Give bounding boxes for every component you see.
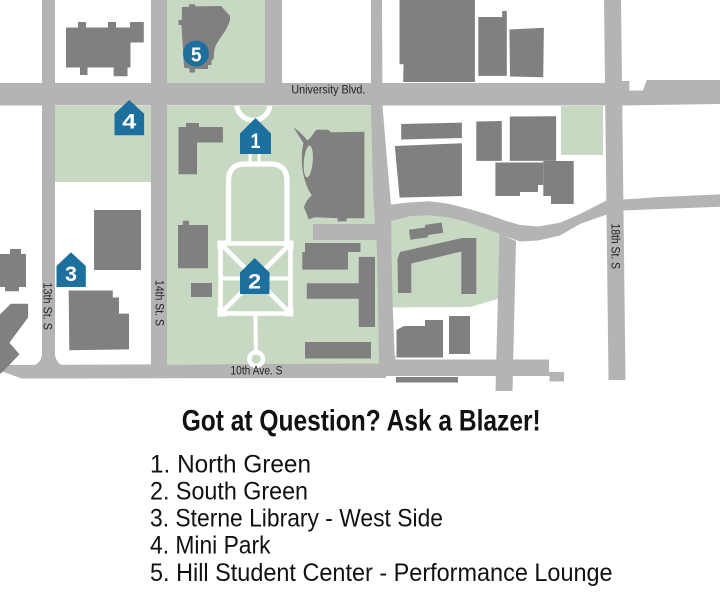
svg-text:5: 5	[191, 43, 202, 66]
svg-text:18th St. S: 18th St. S	[609, 224, 621, 270]
svg-text:1: 1	[251, 129, 261, 153]
svg-text:Got at Question? Ask a Blazer!: Got at Question? Ask a Blazer!	[182, 404, 541, 437]
svg-text:2: 2	[248, 269, 261, 293]
svg-text:1. North Green: 1. North Green	[150, 450, 311, 478]
svg-text:3. Sterne Library - West Side: 3. Sterne Library - West Side	[150, 504, 443, 532]
svg-text:2. South Green: 2. South Green	[150, 477, 308, 505]
svg-text:5. Hill Student Center - Perfo: 5. Hill Student Center - Performance Lou…	[150, 559, 613, 587]
svg-text:4: 4	[122, 110, 136, 134]
svg-text:10th Ave. S: 10th Ave. S	[231, 366, 283, 378]
svg-text:University Blvd.: University Blvd.	[291, 84, 365, 96]
svg-text:14th St. S: 14th St. S	[153, 280, 165, 326]
svg-text:13th St. S: 13th St. S	[41, 283, 53, 331]
svg-text:4. Mini Park: 4. Mini Park	[150, 531, 271, 559]
svg-text:3: 3	[65, 262, 77, 286]
